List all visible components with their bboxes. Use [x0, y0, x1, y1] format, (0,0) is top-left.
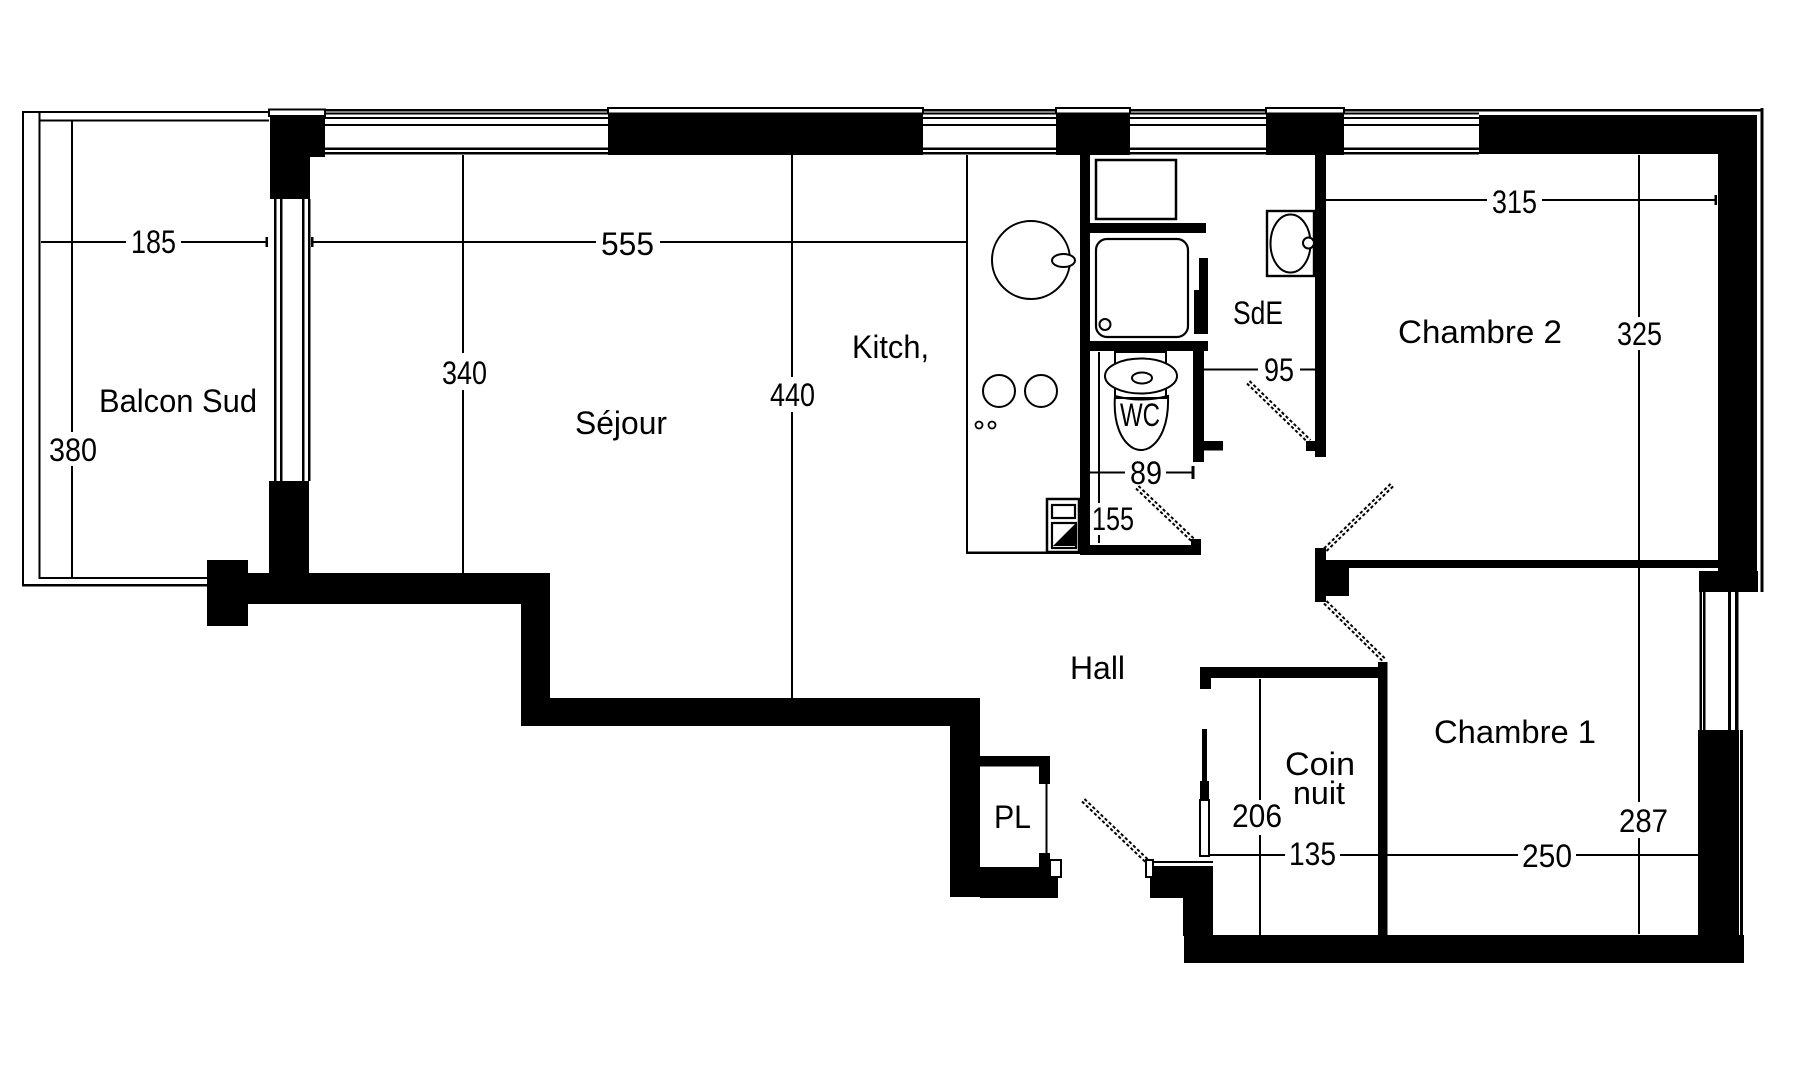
svg-text:nuit: nuit: [1293, 775, 1345, 811]
svg-text:95: 95: [1264, 352, 1294, 388]
svg-text:89: 89: [1130, 455, 1162, 491]
svg-text:135: 135: [1289, 836, 1336, 872]
svg-text:340: 340: [442, 355, 487, 391]
svg-text:SdE: SdE: [1233, 295, 1283, 331]
svg-text:Balcon Sud: Balcon Sud: [99, 383, 257, 419]
svg-text:206: 206: [1232, 798, 1282, 834]
svg-text:Séjour: Séjour: [575, 405, 667, 441]
svg-text:325: 325: [1617, 316, 1662, 352]
svg-text:250: 250: [1522, 838, 1572, 874]
svg-text:Chambre 2: Chambre 2: [1398, 314, 1562, 350]
svg-text:315: 315: [1492, 184, 1537, 220]
svg-text:440: 440: [770, 377, 815, 413]
svg-text:555: 555: [601, 226, 654, 262]
svg-text:Hall: Hall: [1070, 650, 1125, 686]
svg-text:185: 185: [131, 224, 176, 260]
svg-text:PL: PL: [994, 799, 1031, 835]
svg-text:Kitch,: Kitch,: [852, 329, 929, 365]
svg-text:155: 155: [1092, 501, 1134, 537]
svg-text:WC: WC: [1120, 397, 1160, 433]
svg-text:Chambre 1: Chambre 1: [1434, 714, 1596, 750]
svg-text:380: 380: [49, 432, 97, 468]
svg-text:287: 287: [1619, 803, 1668, 839]
